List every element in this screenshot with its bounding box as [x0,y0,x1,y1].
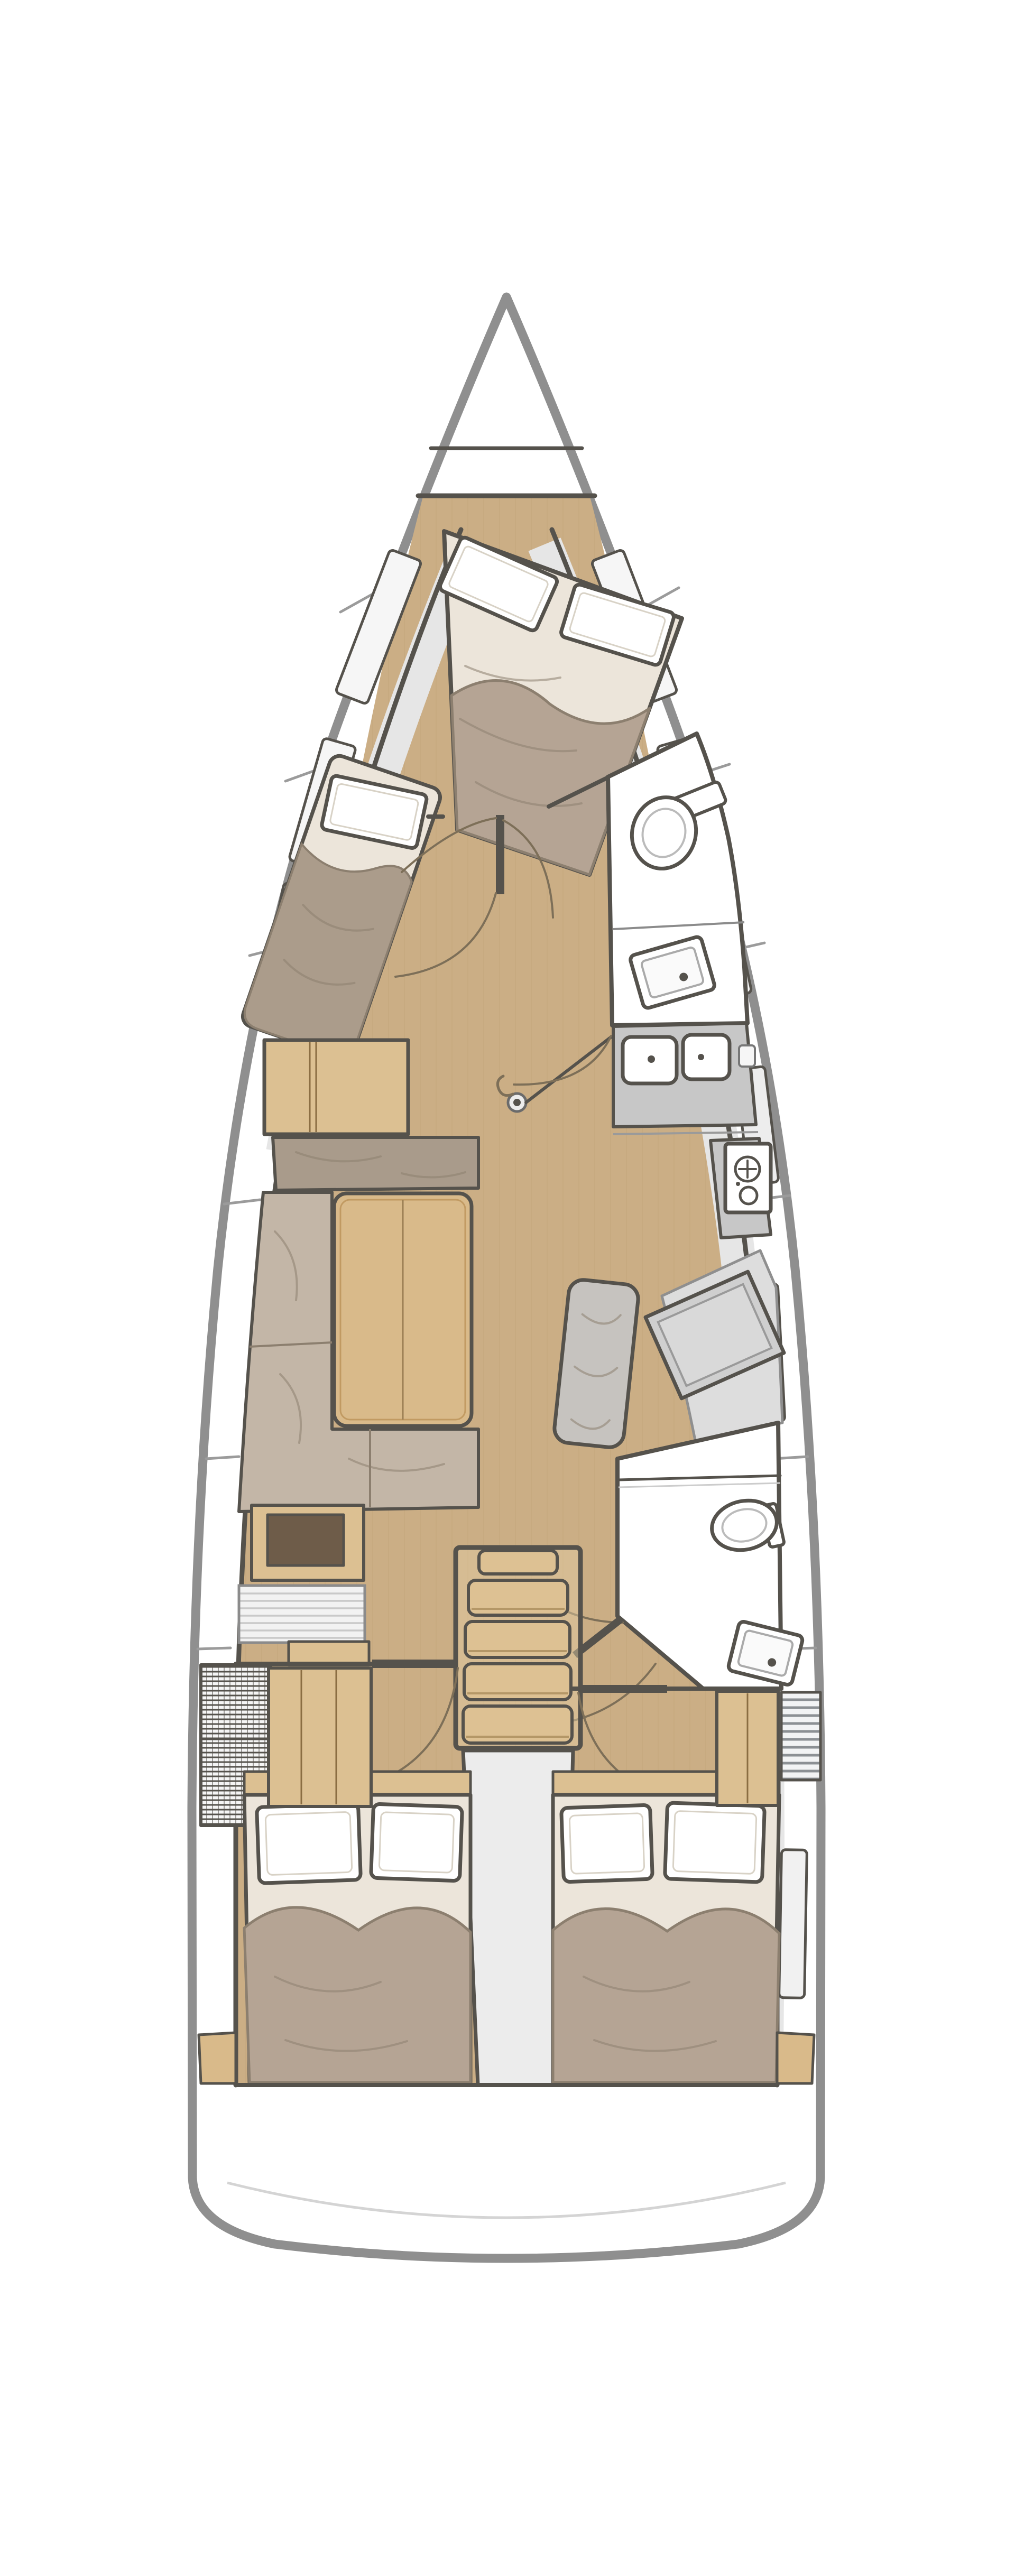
yacht-floor-plan [0,0,1015,2576]
step-1 [468,1580,568,1615]
door-leaf [496,815,504,894]
salon-aft-step [289,1642,369,1665]
sideboard [264,1040,408,1134]
port-aft-pillow-2 [371,1804,463,1881]
galley-sink-left [623,1037,677,1083]
wardrobe-port [269,1668,371,1806]
galley-latch [739,1045,755,1067]
floor-plan-page: Sailing yacht interior layout floor plan… [0,0,1015,2576]
port-aft-duvet [244,1907,470,2082]
salon-table [334,1193,472,1426]
settee-backrest [273,1137,478,1190]
burner-small [740,1187,757,1204]
aft-port-door-leaf [372,1660,458,1668]
storage-chest [252,1505,364,1580]
deck-grate-starboard [781,1692,820,1780]
companionway-steps [456,1548,580,1748]
wardrobe-starboard [717,1691,778,1805]
galley-sink-right [683,1035,730,1079]
stbd-aft-pillow-1 [561,1805,653,1882]
port-aft-pillow-1 [257,1804,361,1884]
stern-deck-wedge-port [199,2033,236,2083]
stove [725,1144,771,1212]
forward-head [608,734,748,1025]
stbd-aft-duvet [553,1908,779,2082]
step-top [479,1551,557,1574]
nav-seat [553,1278,640,1449]
stern-deck-wedge-starboard [777,2033,814,2083]
stbd-aft-pillow-2 [665,1803,765,1882]
salon-aft-shelf [239,1586,365,1643]
aft-stbd-door-leaf [578,1685,667,1693]
